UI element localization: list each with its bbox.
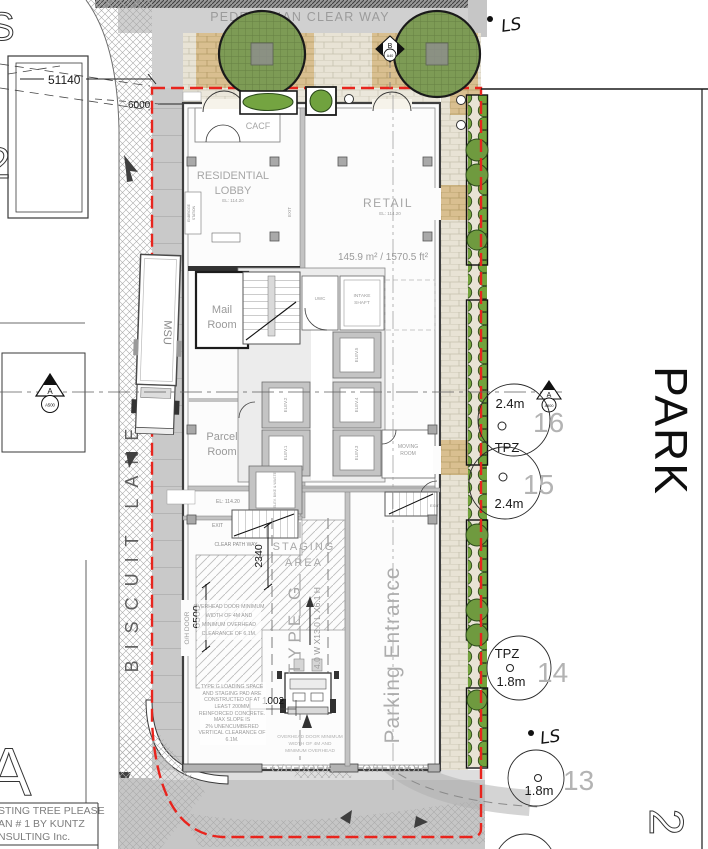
- corner-note: STING TREE PLEASE AN # 1 BY KUNTZ NSULTI…: [0, 805, 105, 843]
- site-plan-svg: PEDESTRIAN CLEAR WAY BISCUIT LANE 51140 …: [0, 0, 708, 849]
- ls-top-label: LS: [500, 14, 523, 37]
- parcel-label-2: Room: [207, 446, 236, 458]
- retail-el: EL: 114.20: [379, 211, 401, 216]
- stair-exit: [232, 510, 298, 538]
- section-b-sheet: A40: [387, 54, 393, 58]
- dim-51140-label: 51140: [48, 73, 81, 87]
- section-a-sheet: A500: [45, 403, 55, 408]
- parking-entrance-label: Parking Entrance: [381, 566, 404, 743]
- tg-note-9: 6.1M.: [226, 737, 239, 743]
- neighbour-lot: [0, 56, 98, 849]
- hedge-strip: [468, 95, 487, 767]
- elev1-label: ELEV.1: [283, 445, 288, 460]
- staging-label-2: AREA: [285, 557, 323, 569]
- intake-label-1: INTAKE: [354, 293, 371, 299]
- exit-vertical-label: EXIT: [287, 207, 292, 217]
- tree-14-num: 14: [537, 657, 568, 688]
- type-g-note: TYPE G LOADING SPACE AND STAGING PAD ARE…: [199, 684, 266, 743]
- oh-door-right-label: O/H DOOR: [362, 763, 426, 775]
- tg-note-8: VERTICAL CLEARANCE OF: [199, 730, 266, 736]
- intake-label-2: SHAFT: [354, 300, 370, 306]
- lot-numeral: 2: [639, 809, 692, 836]
- section-marker-a-left: A A500: [36, 374, 64, 413]
- lobby-label-2: LOBBY: [215, 185, 252, 197]
- parcel-label-1: Parcel: [206, 431, 237, 443]
- type-g-label: TYPE G: [285, 582, 304, 674]
- tree-15-size: 2.4m: [495, 496, 524, 511]
- oh-door-west-label: O/H DOOR: [184, 611, 191, 644]
- exit-label: EXIT: [212, 523, 223, 529]
- retail-area: 145.9 m² / 1570.5 ft²: [338, 252, 429, 263]
- tg-note-1: TYPE G LOADING SPACE: [201, 684, 264, 690]
- oh-note-2: WIDTH OF 4M AND: [206, 613, 253, 619]
- elev-bw-label: ELEV. BIKE & WASTE: [273, 471, 277, 508]
- exit-parking-label: EXIT: [430, 503, 439, 508]
- uwc-label: UWC: [315, 296, 326, 301]
- lobby-el: EL: 114.20: [222, 198, 244, 203]
- section-a-letter: A: [47, 387, 53, 396]
- oh-door-left-label: O/H DOOR: [271, 763, 335, 775]
- type-g-dims-label: 4.0 W X13.0 L X6.1 H: [312, 587, 322, 669]
- ls-marker-top: LS: [487, 14, 523, 37]
- ls-mid-label: LS: [539, 726, 562, 749]
- ls-marker-mid: LS: [528, 726, 562, 749]
- oh-note-1: OVERHEAD DOOR MINIMUM: [194, 604, 265, 610]
- corner-note-line2: AN # 1 BY KUNTZ: [0, 818, 85, 830]
- mail-label-1: Mail: [212, 304, 232, 316]
- dim-6000-label: 6000: [128, 100, 151, 111]
- site-plan-drawing: PEDESTRIAN CLEAR WAY BISCUIT LANE 51140 …: [0, 0, 708, 849]
- tree-13-size: 1.8m: [525, 783, 554, 798]
- staging-label-1: STAGING: [273, 541, 336, 553]
- uwc-room: [302, 276, 338, 330]
- oh-note-4: CLEARANCE OF 6.1M.: [202, 631, 257, 637]
- park-label: PARK: [645, 366, 697, 496]
- tg-note-6: MAX SLOPE IS: [214, 717, 251, 723]
- letter-z: 2: [0, 139, 10, 188]
- tpz-tree-14: TPZ 1.8m 14: [487, 636, 568, 700]
- oh-note-r2: WIDTH OF 4M AND: [289, 741, 332, 747]
- letter-a: A: [0, 734, 32, 810]
- enbridge-label-2: STATION: [192, 205, 196, 220]
- lobby-label-1: RESIDENTIAL: [197, 170, 269, 182]
- moving-label-1: MOVING: [398, 444, 418, 450]
- oh-note-r3: MINIMUM OVERHEAD: [285, 748, 335, 754]
- tree-16-size: 2.4m: [496, 396, 525, 411]
- tree-14-tpz: TPZ: [495, 646, 520, 661]
- retail-label: RETAIL: [363, 196, 413, 210]
- park: PARK 2 LS LS 2.4m 16 TPZ 15 2.4m TPZ 1.8…: [469, 14, 708, 849]
- tree-16-num: 16: [533, 407, 564, 438]
- elev2-label: ELEV.2: [283, 397, 288, 412]
- cacf-label: CACF: [246, 121, 271, 131]
- tree-15-num: 15: [523, 469, 554, 500]
- clear-path-label: CLEAR PATH WAY: [215, 542, 259, 548]
- msu-label: MSU: [161, 320, 174, 345]
- corner-note-line3: NSULTING Inc.: [0, 831, 70, 843]
- elev3-label: ELEV.3: [354, 445, 359, 460]
- letter-s: S: [0, 5, 15, 49]
- el-level-west: EL: 114.20: [216, 499, 240, 505]
- mail-label-2: Room: [207, 319, 236, 331]
- elev5-label: ELEV.5: [354, 347, 359, 362]
- tg-note-4: LEAST 200MM: [214, 704, 249, 710]
- enbridge-label-1: ENBRIDGE: [187, 203, 191, 221]
- lobby-bench: [212, 233, 240, 242]
- corner-note-line1: STING TREE PLEASE: [0, 805, 105, 817]
- tg-note-3: CONSTRUCTED OF AT: [204, 697, 261, 703]
- tree-13-num: 13: [563, 765, 594, 796]
- elev4-label: ELEV.4: [354, 397, 359, 412]
- moving-label-2: ROOM: [400, 451, 416, 457]
- oh-note-3: MINIMUM OVERHEAD: [202, 622, 256, 628]
- oh-note-r1: OVERHEAD DOOR MINIMUM: [277, 734, 343, 740]
- stair-core: [243, 272, 300, 344]
- tpz-tree-partial: [495, 834, 555, 849]
- tree-14-size: 1.8m: [497, 674, 526, 689]
